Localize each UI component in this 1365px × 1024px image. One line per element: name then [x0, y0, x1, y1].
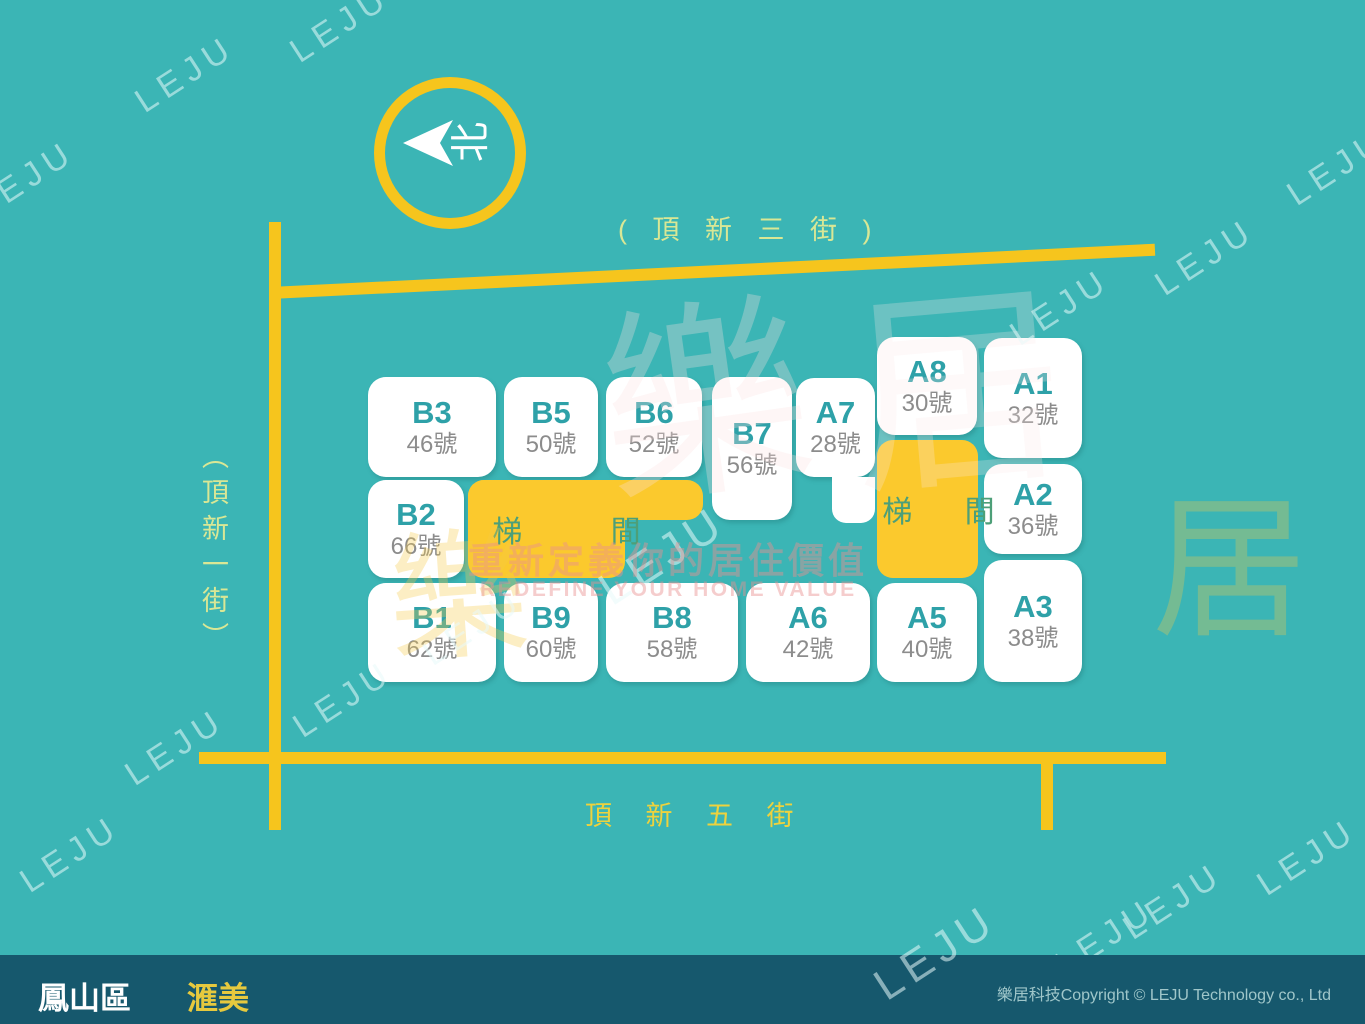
unit-number: 40號 [902, 635, 953, 664]
project-name-label: 滙美 [187, 973, 249, 1018]
unit-label: A3 [1013, 590, 1053, 624]
stairwell-label: 梯 間 [468, 480, 665, 578]
compass-north-label: 北 [447, 120, 495, 164]
unit-label: B3 [412, 396, 452, 430]
unit-label: A2 [1013, 478, 1053, 512]
unit-label: B7 [732, 417, 772, 451]
leju-watermark: LEJU [1148, 211, 1262, 304]
unit-label: A1 [1013, 367, 1053, 401]
unit-extension [832, 477, 875, 523]
unit-label: B8 [652, 601, 692, 635]
unit-label: A6 [788, 601, 828, 635]
unit-block-B9[interactable]: B960號 [504, 583, 598, 682]
unit-block-B3[interactable]: B346號 [368, 377, 496, 477]
unit-number: 28號 [810, 430, 861, 459]
street-label-left: （頂新一街） [194, 442, 233, 672]
unit-block-A6[interactable]: A642號 [746, 583, 870, 682]
leju-watermark: LEJU [128, 28, 242, 121]
leju-watermark: LEJU [0, 133, 83, 226]
unit-number: 58號 [647, 635, 698, 664]
footer-bar: 鳳山區 滙美 樂居科技Copyright © LEJU Technology c… [0, 955, 1365, 1024]
leju-watermark: LEJU [1116, 855, 1230, 948]
unit-block-B5[interactable]: B550號 [504, 377, 598, 477]
district-label: 鳳山區 [38, 973, 131, 1018]
unit-block-A3[interactable]: A338號 [984, 560, 1082, 682]
leju-watermark: LEJU [1250, 811, 1364, 904]
site-plan-map: 北 ( 頂 新 三 街 ) （頂新一街） 頂 新 五 街 B346號B550號B… [0, 0, 1365, 1024]
road-left-street [269, 222, 281, 830]
unit-block-B6[interactable]: B652號 [606, 377, 702, 477]
unit-number: 42號 [783, 635, 834, 664]
leju-watermark: LEJU [1280, 121, 1365, 214]
leju-watermark: LEJU [283, 0, 397, 71]
unit-number: 50號 [526, 430, 577, 459]
script-watermark-glyph: 居 [1152, 492, 1307, 647]
unit-number: 66號 [391, 532, 442, 561]
unit-number: 32號 [1008, 401, 1059, 430]
unit-label: B2 [396, 498, 436, 532]
unit-label: B6 [634, 396, 674, 430]
unit-label: A8 [907, 355, 947, 389]
unit-number: 60號 [526, 635, 577, 664]
unit-block-A8[interactable]: A830號 [877, 337, 977, 435]
road-bottom-street [199, 752, 1166, 764]
road-bottom-stub [1041, 764, 1053, 830]
unit-number: 56號 [727, 451, 778, 480]
unit-block-B8[interactable]: B858號 [606, 583, 738, 682]
unit-number: 30號 [902, 389, 953, 418]
copyright-text: 樂居科技Copyright © LEJU Technology co., Ltd [997, 981, 1331, 1005]
unit-number: 46號 [407, 430, 458, 459]
unit-block-A5[interactable]: A540號 [877, 583, 977, 682]
leju-watermark: LEJU [118, 701, 232, 794]
unit-label: B9 [531, 601, 571, 635]
unit-block-B7[interactable]: B756號 [712, 377, 792, 520]
unit-label: B5 [531, 396, 571, 430]
unit-block-B1[interactable]: B162號 [368, 583, 496, 682]
unit-label: A5 [907, 601, 947, 635]
leju-watermark: LEJU [13, 808, 127, 901]
unit-label: B1 [412, 601, 452, 635]
unit-number: 38號 [1008, 624, 1059, 653]
stairwell-label: 梯 間 [877, 440, 1000, 578]
unit-block-B2[interactable]: B266號 [368, 480, 464, 578]
street-label-bottom: 頂 新 五 街 [585, 794, 807, 833]
unit-number: 62號 [407, 635, 458, 664]
unit-label: A7 [816, 396, 856, 430]
unit-block-A7[interactable]: A728號 [796, 378, 875, 477]
unit-number: 52號 [629, 430, 680, 459]
road-top-street [270, 244, 1156, 299]
street-label-top: ( 頂 新 三 街 ) [618, 208, 881, 247]
